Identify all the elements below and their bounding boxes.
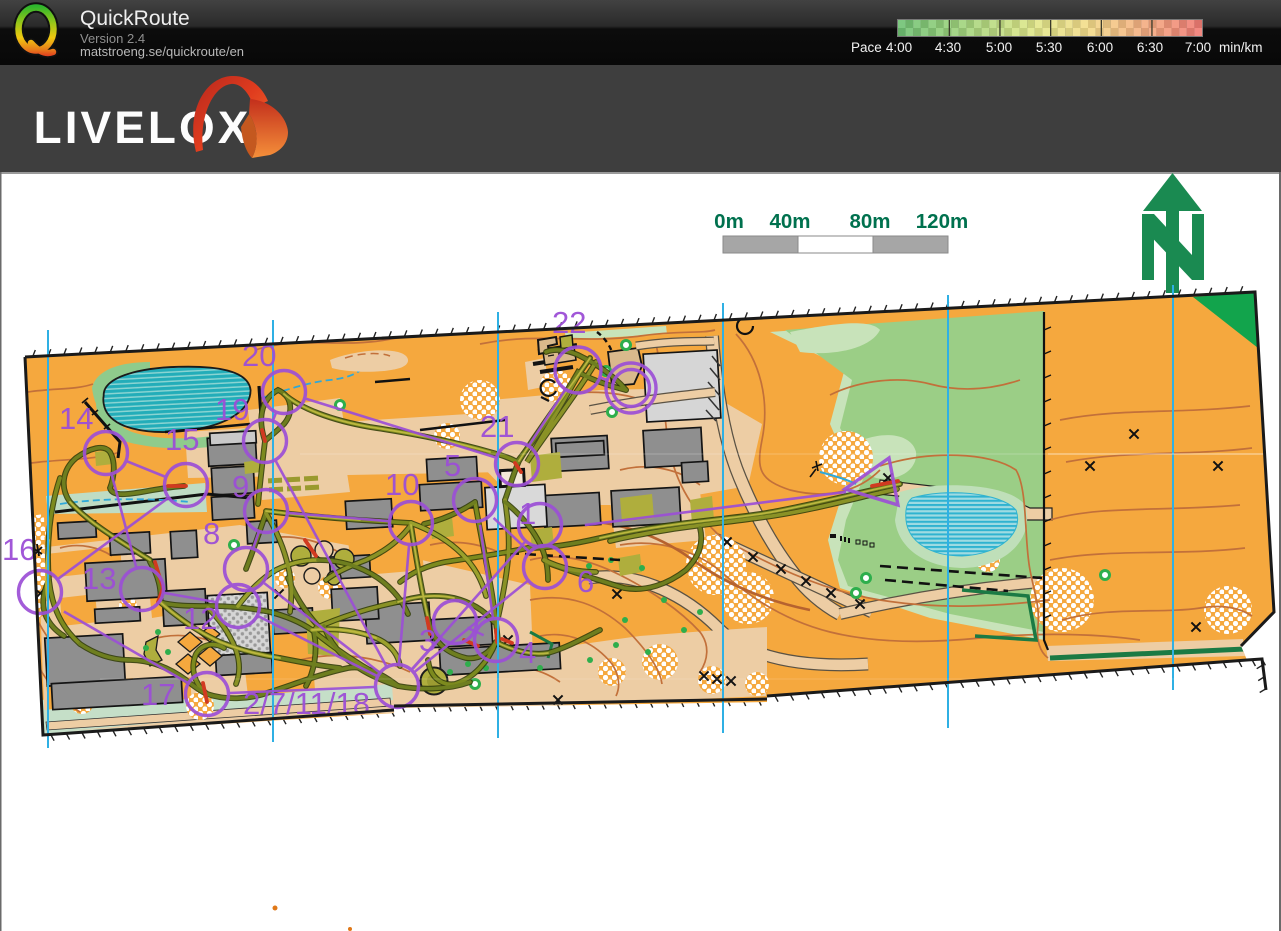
svg-text:1: 1	[519, 496, 536, 531]
svg-text:10: 10	[385, 467, 419, 502]
svg-text:14: 14	[59, 401, 93, 436]
svg-text:4: 4	[519, 635, 536, 670]
svg-text:22: 22	[552, 305, 586, 340]
svg-text:40m: 40m	[769, 210, 810, 233]
svg-text:19: 19	[215, 392, 249, 427]
svg-text:5: 5	[444, 448, 461, 483]
svg-text:8: 8	[203, 516, 220, 551]
svg-text:120m: 120m	[916, 210, 968, 233]
svg-text:9: 9	[232, 469, 249, 504]
svg-text:15: 15	[165, 422, 199, 457]
svg-text:16: 16	[2, 532, 36, 567]
svg-text:13: 13	[82, 561, 116, 596]
svg-text:21: 21	[480, 409, 514, 444]
svg-text:12: 12	[183, 601, 217, 636]
svg-text:80m: 80m	[849, 210, 890, 233]
svg-text:3: 3	[419, 623, 436, 658]
svg-text:0m: 0m	[714, 210, 744, 233]
svg-text:17: 17	[141, 677, 175, 712]
svg-text:6: 6	[577, 564, 594, 599]
